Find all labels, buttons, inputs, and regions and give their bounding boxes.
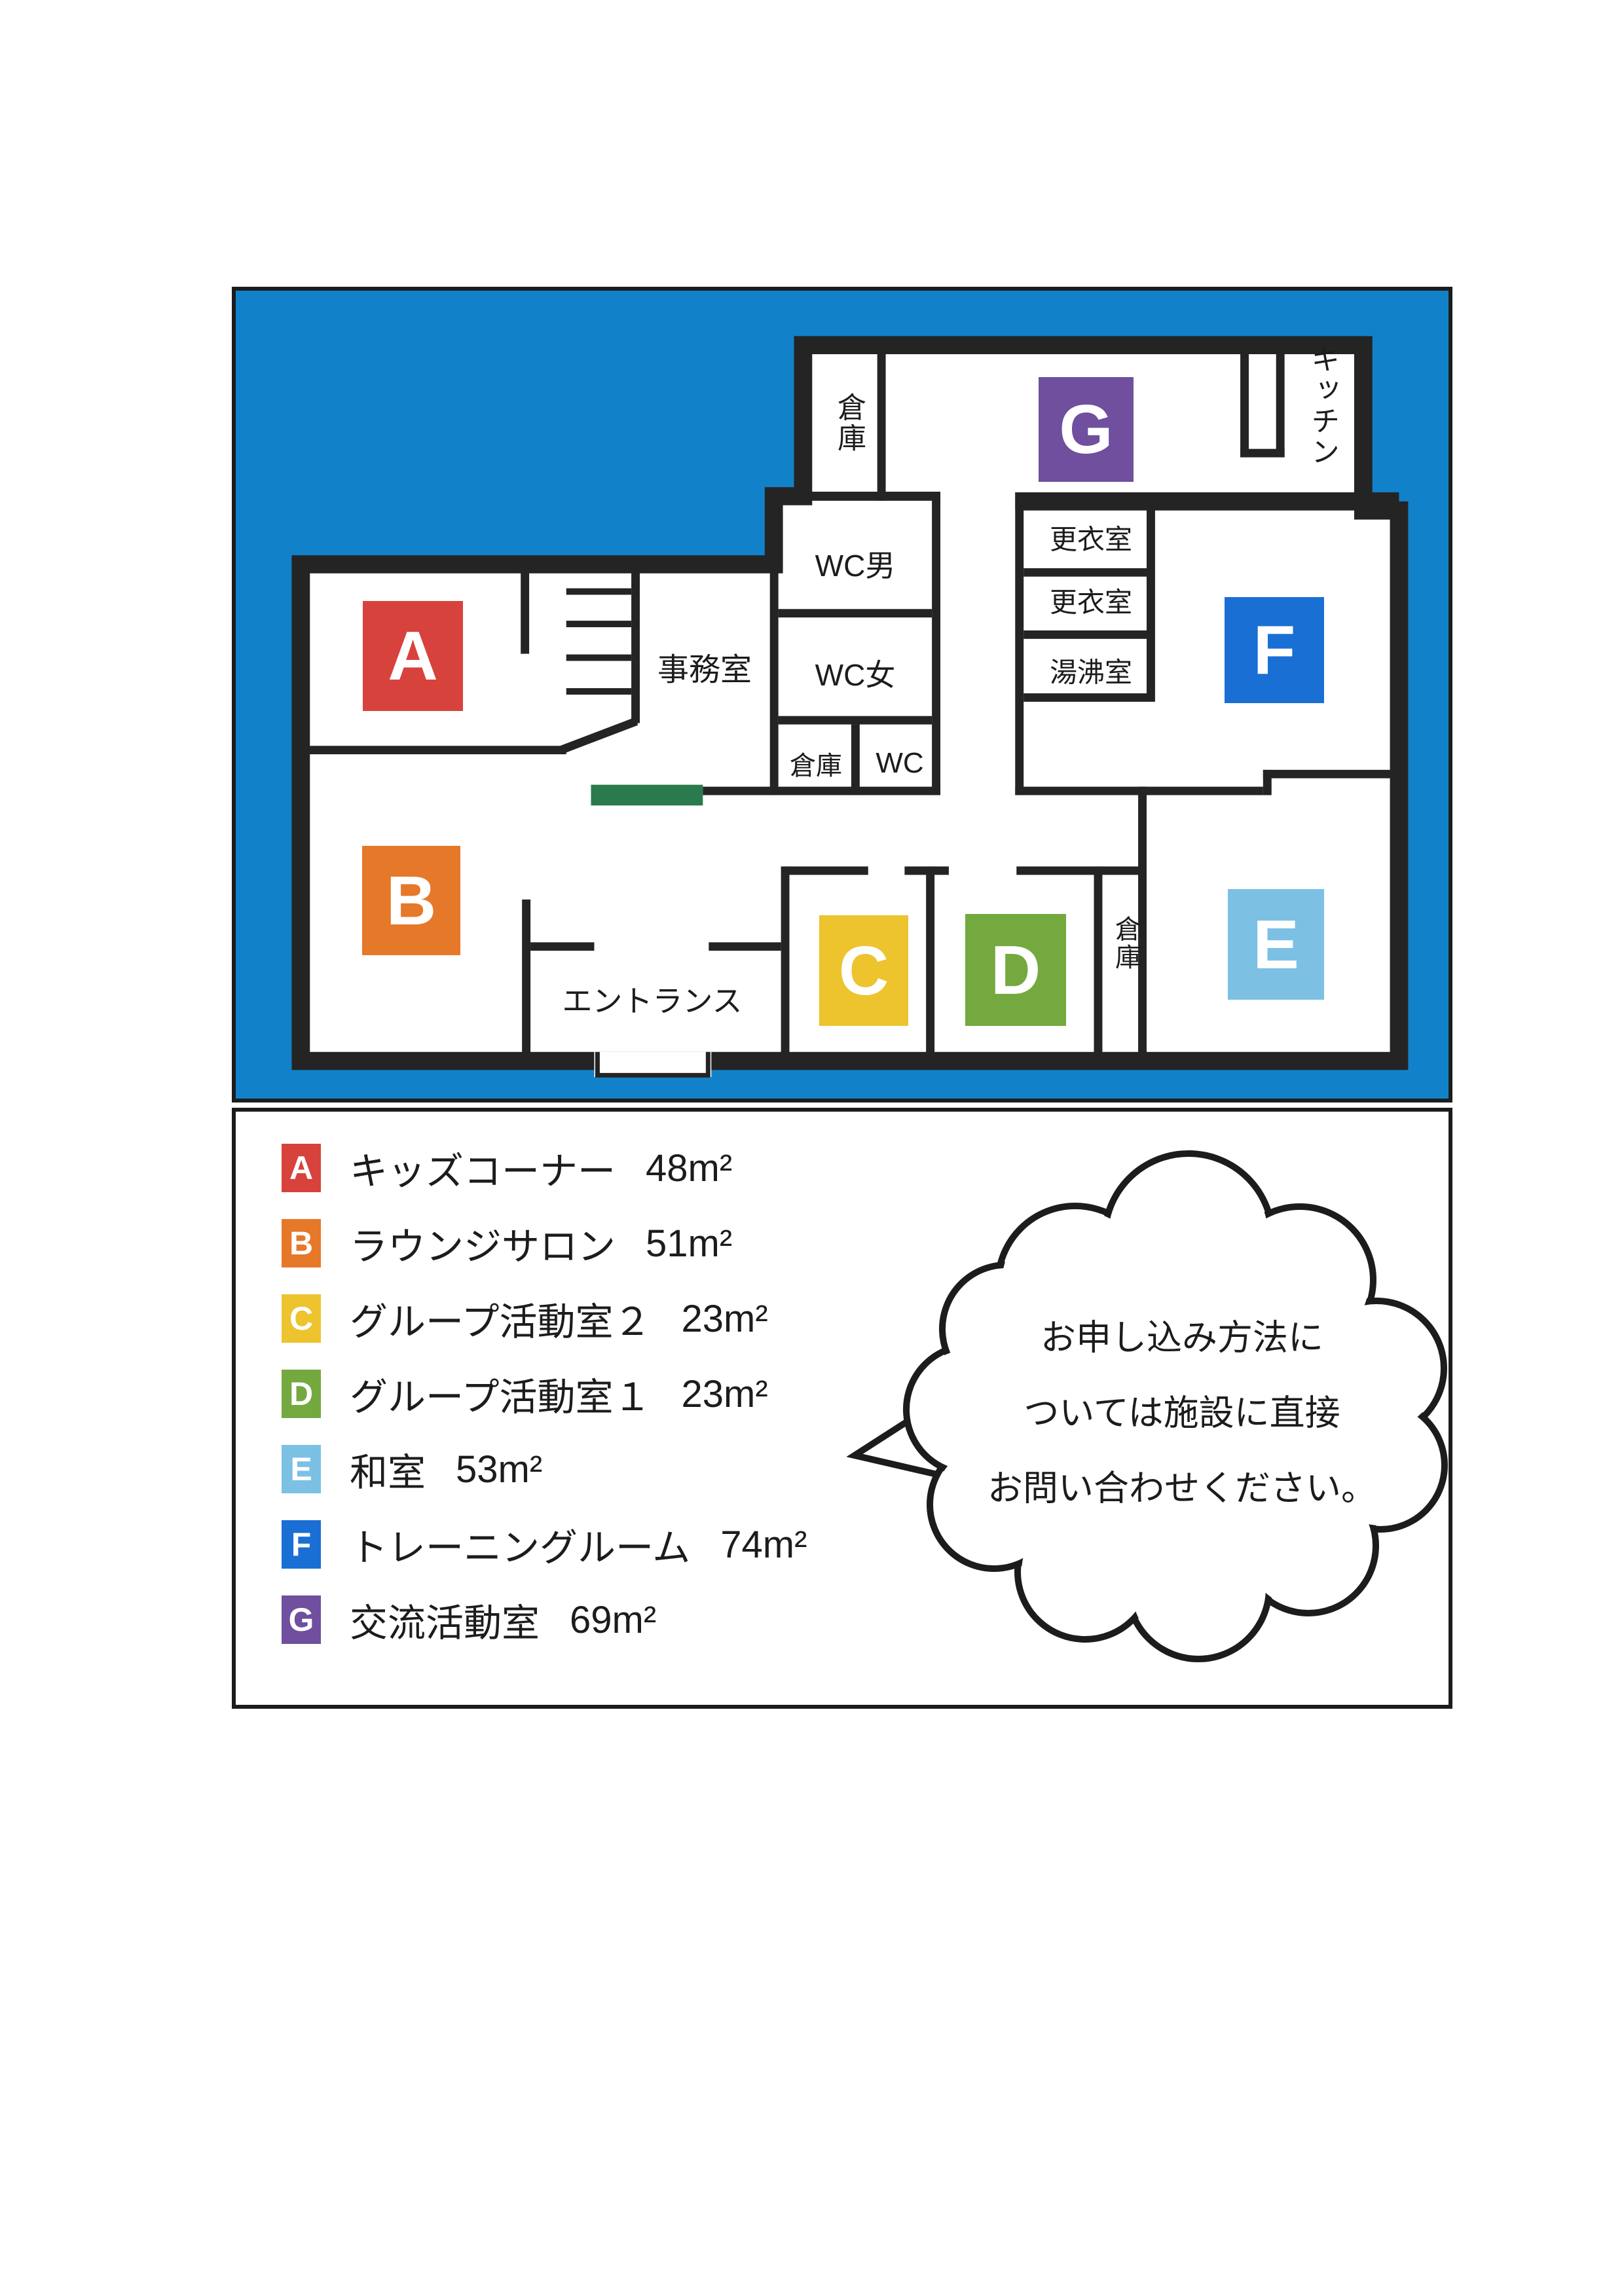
room-letter-a: A bbox=[388, 621, 438, 691]
scanned-page: { "colors": { "panel_blue": "#1182ca", "… bbox=[0, 0, 1624, 2296]
room-marker-b: B bbox=[362, 846, 460, 955]
room-marker-e: E bbox=[1228, 889, 1324, 1000]
room-marker-c: C bbox=[819, 915, 908, 1026]
room-marker-a: A bbox=[363, 601, 463, 711]
callout-text-line-1: お申し込み方法に bbox=[1041, 1309, 1323, 1360]
callout-text-line-2: ついては施設に直接 bbox=[1024, 1384, 1340, 1436]
room-letter-c: C bbox=[839, 936, 889, 1006]
room-label-storage-center: 倉庫 bbox=[790, 744, 842, 782]
room-label-storage-east: 倉庫 bbox=[1107, 915, 1145, 972]
legend-box: A キッズコーナー 48m² B ラウンジサロン 51m² C グループ活動室２… bbox=[232, 1108, 1452, 1709]
room-marker-f: F bbox=[1225, 597, 1324, 703]
room-marker-d: D bbox=[965, 914, 1066, 1026]
callout-text-line-3: お問い合わせください。 bbox=[987, 1459, 1376, 1511]
room-label-kettle-room: 湯沸室 bbox=[1050, 651, 1132, 691]
room-letter-f: F bbox=[1253, 615, 1296, 685]
room-label-kitchen: キッチン bbox=[1301, 344, 1343, 467]
room-label-wc-men: WC男 bbox=[815, 542, 896, 585]
room-label-locker-room-2: 更衣室 bbox=[1050, 581, 1132, 621]
room-label-entrance: エントランス bbox=[562, 977, 742, 1021]
reception-counter bbox=[591, 785, 703, 806]
room-letter-g: G bbox=[1059, 395, 1113, 464]
room-label-storage-north: 倉庫 bbox=[828, 392, 870, 454]
floor-plan-panel: A B C D E F G 事務室 WC男 WC女 倉庫 WC 更衣室 更衣室 … bbox=[232, 287, 1452, 1102]
room-letter-e: E bbox=[1253, 910, 1299, 979]
room-marker-g: G bbox=[1039, 377, 1134, 482]
entrance-opening bbox=[594, 1052, 711, 1078]
room-label-wc-women: WC女 bbox=[815, 651, 896, 695]
room-letter-b: B bbox=[386, 866, 437, 936]
room-label-office: 事務室 bbox=[657, 644, 752, 689]
room-label-wc: WC bbox=[876, 747, 923, 780]
room-letter-d: D bbox=[991, 936, 1041, 1005]
room-label-locker-room-1: 更衣室 bbox=[1050, 518, 1132, 558]
